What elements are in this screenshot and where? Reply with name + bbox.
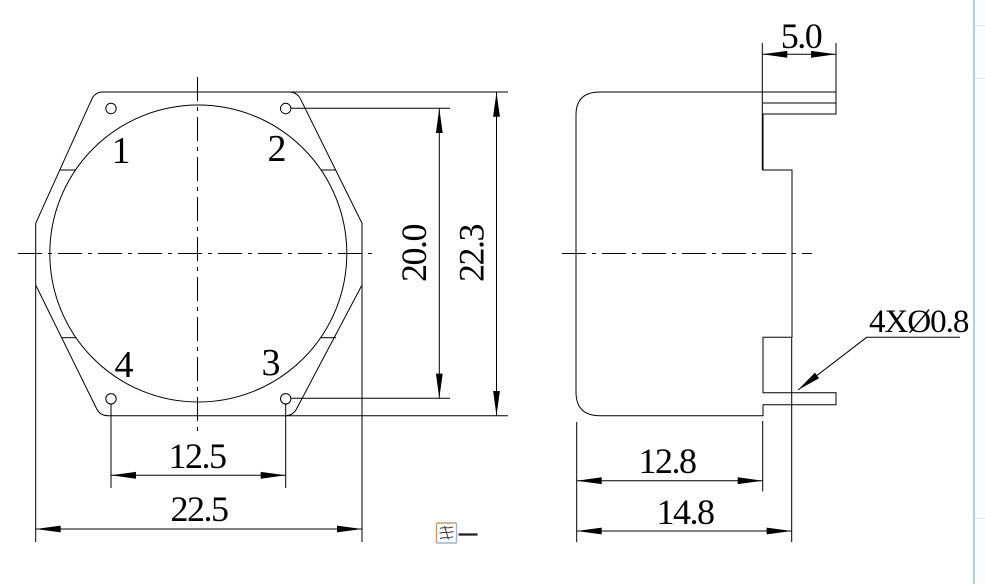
dim-label-22-5: 22.5 (171, 489, 229, 529)
pin-hole-2 (281, 103, 291, 113)
arrowhead-down (493, 391, 500, 416)
arrowhead-up (436, 108, 443, 133)
front-center-lines (18, 77, 377, 433)
hole-label-2: 2 (268, 128, 287, 170)
leader-arrowhead (798, 373, 819, 390)
pin-hole-3 (281, 394, 291, 404)
scrollbar-track[interactable] (975, 0, 985, 584)
side-dimensions: 5.0 12.8 14.8 4XØ0.8 (577, 16, 969, 542)
hole-number-labels: 1 2 3 4 (112, 128, 287, 386)
arrowhead-right (767, 528, 792, 535)
dim-label-12-5: 12.5 (169, 436, 227, 476)
hole-label-3: 3 (262, 342, 281, 384)
leader-pin-diameter: 4XØ0.8 (798, 304, 969, 390)
dim-hole-span-horizontal: 12.5 (111, 405, 286, 489)
dim-label-20-0: 20.0 (394, 225, 434, 283)
hole-label-1: 1 (112, 130, 131, 172)
dim-label-22-3: 22.3 (452, 225, 492, 283)
caption-char-tu (437, 523, 457, 543)
dim-label-14-8: 14.8 (657, 492, 715, 532)
arrowhead-right (337, 526, 362, 533)
side-view (562, 92, 836, 416)
arrowhead-up (493, 92, 500, 117)
arrowhead-left (577, 477, 602, 484)
hole-label-4: 4 (115, 344, 134, 386)
arrowhead-down (436, 374, 443, 399)
dim-overall-depth: 14.8 (577, 337, 792, 542)
dim-label-5-0: 5.0 (781, 16, 822, 56)
arrowhead-left (111, 472, 136, 479)
dim-label-12-8: 12.8 (639, 441, 697, 481)
figure-caption (437, 523, 478, 543)
window-right-edge (974, 0, 985, 584)
dim-overall-width: 22.5 (36, 285, 362, 542)
arrowhead-right (261, 472, 286, 479)
technical-drawing-canvas: 1 2 3 4 20.0 22.3 (0, 0, 985, 584)
leader-label-4x-dia-0-8: 4XØ0.8 (869, 304, 969, 340)
arrowhead-left (36, 526, 61, 533)
pin-hole-4 (106, 394, 116, 404)
pin-hole-1 (106, 103, 116, 113)
arrowhead-right (738, 477, 763, 484)
leader-line (798, 337, 960, 390)
arrowhead-left (577, 528, 602, 535)
dim-flange-width: 5.0 (762, 16, 836, 170)
front-view: 1 2 3 4 (18, 77, 377, 433)
